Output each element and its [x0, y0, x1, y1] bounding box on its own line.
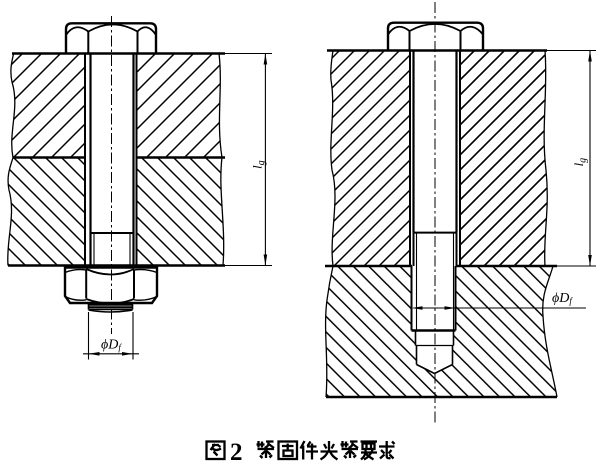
svg-text:2: 2 [230, 439, 243, 465]
